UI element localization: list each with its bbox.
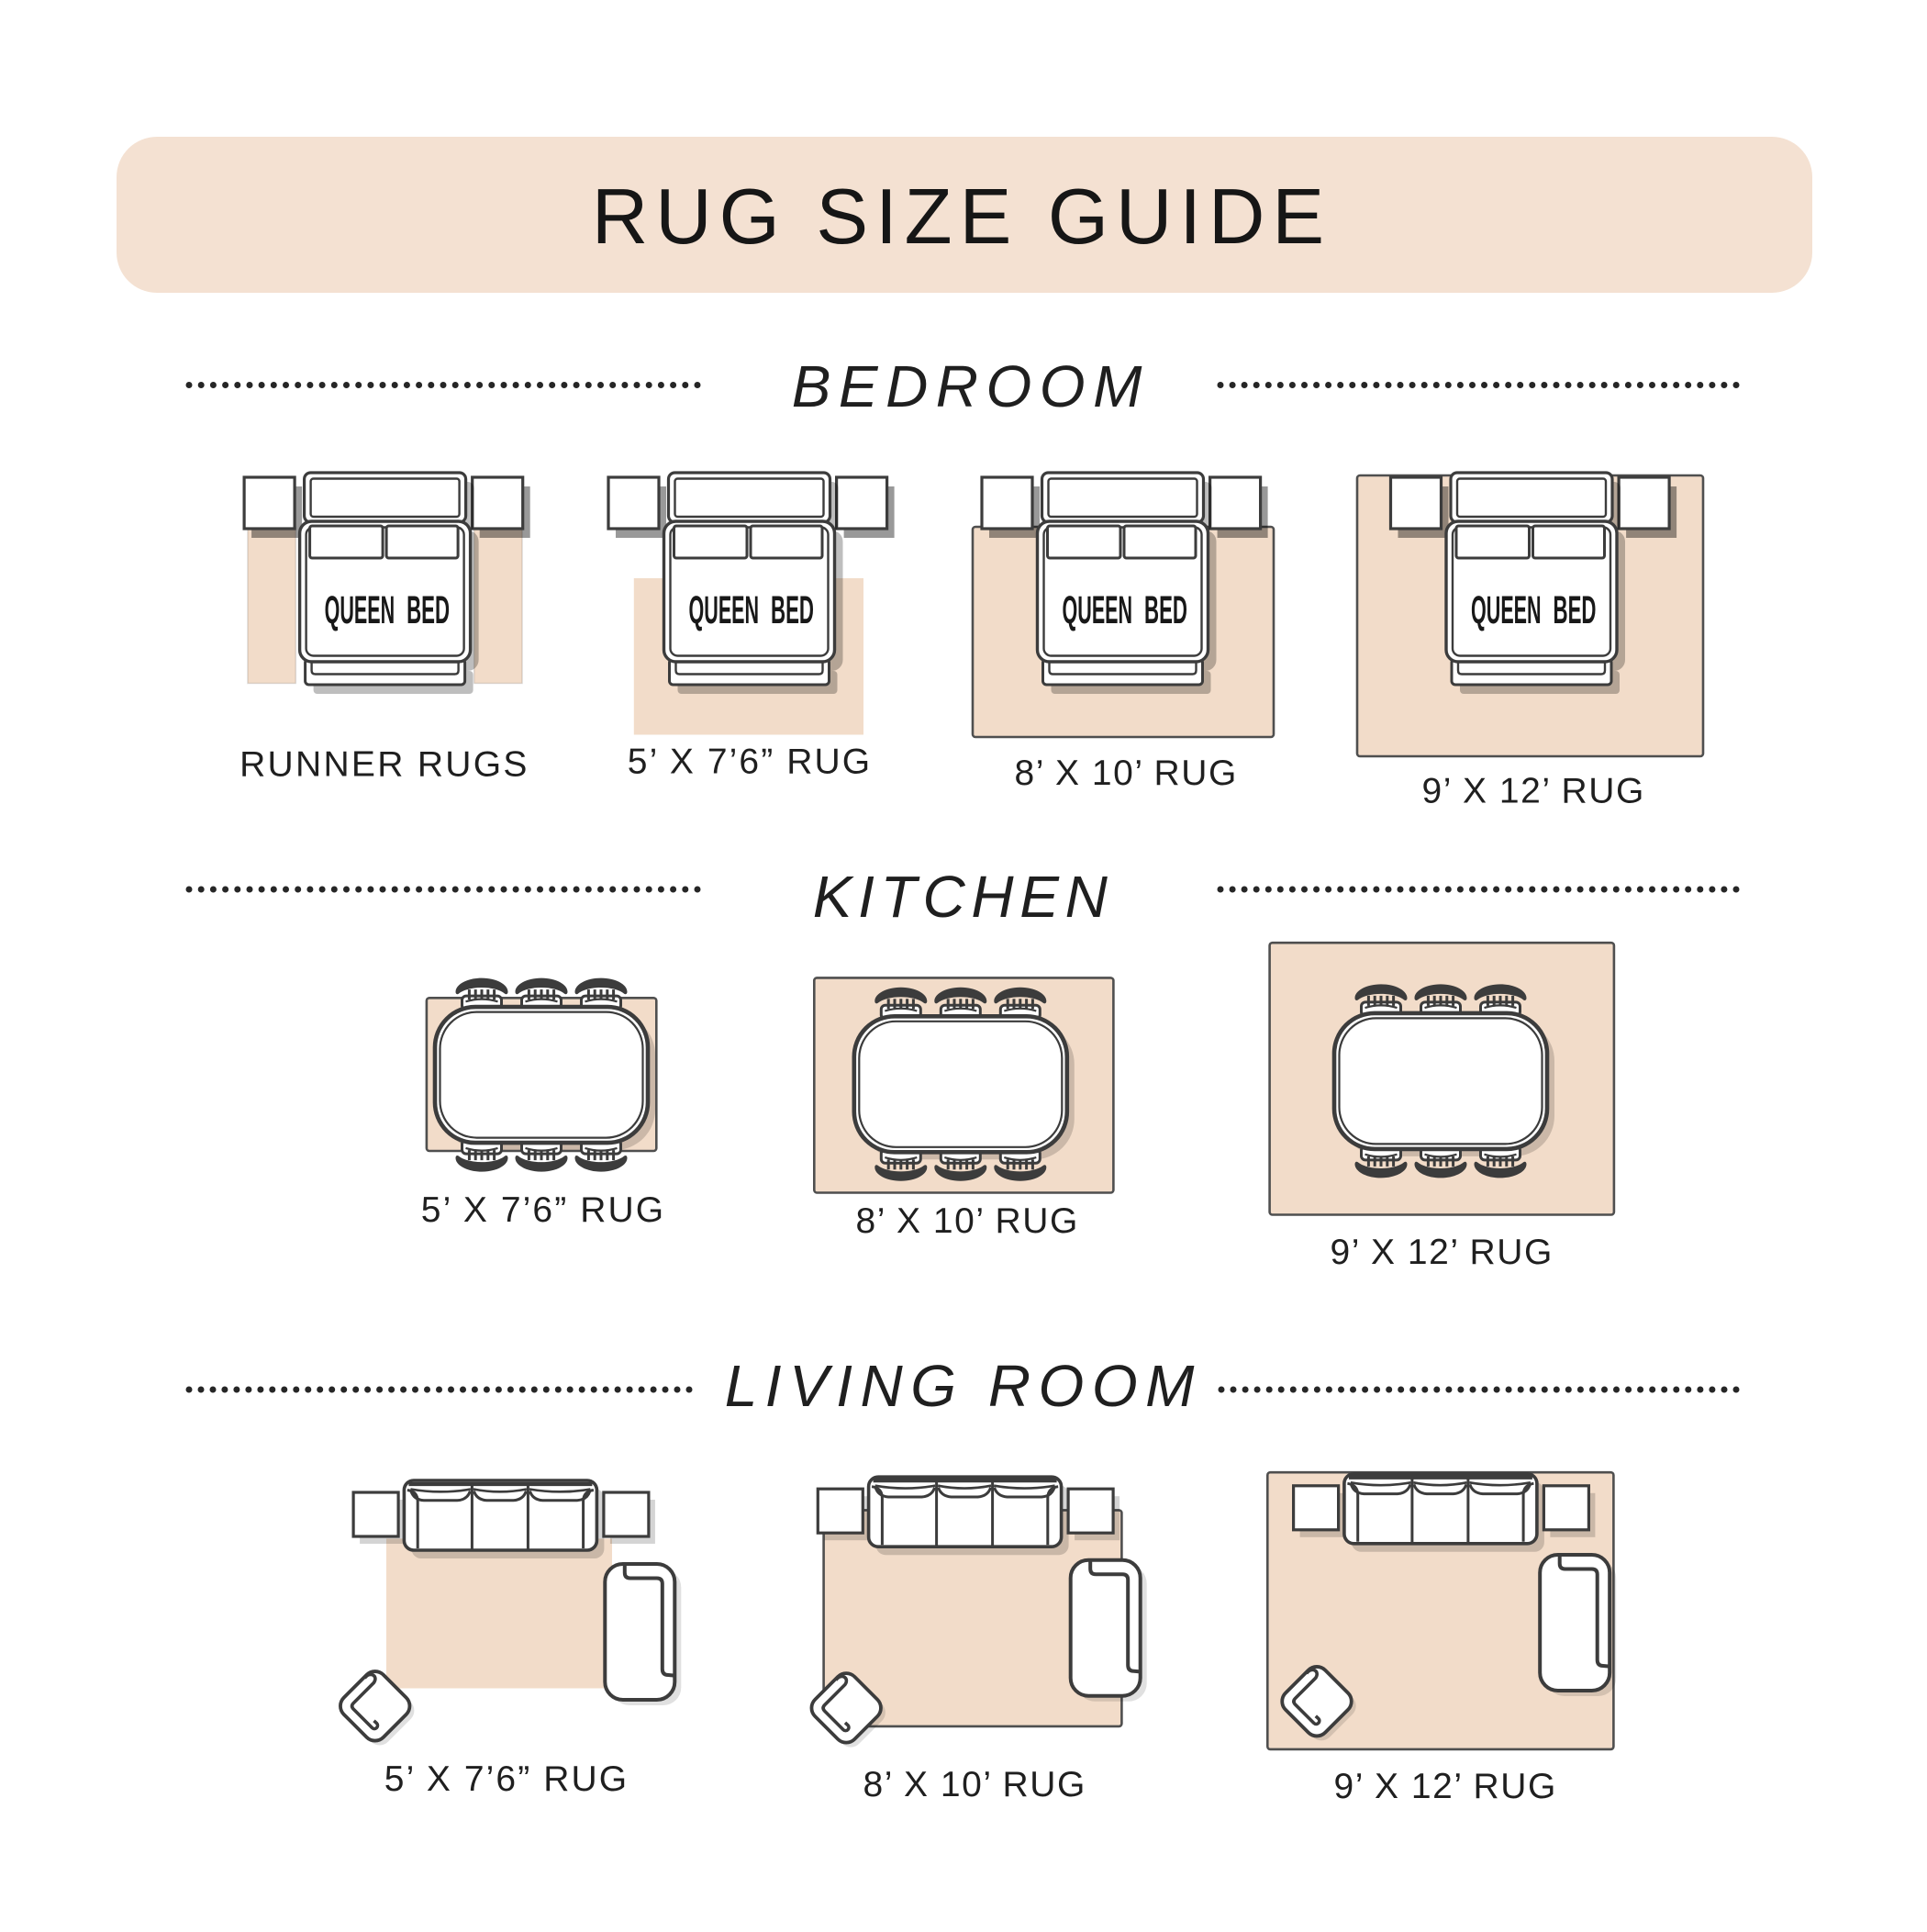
svg-text:QUEEN: QUEEN: [325, 588, 395, 632]
svg-text:BED: BED: [771, 588, 814, 632]
svg-text:QUEEN: QUEEN: [689, 588, 760, 632]
svg-text:KITCHEN: KITCHEN: [813, 864, 1114, 930]
svg-text:9’ X 12’ RUG: 9’ X 12’ RUG: [1422, 771, 1645, 810]
svg-text:RUG SIZE GUIDE: RUG SIZE GUIDE: [592, 173, 1331, 261]
svg-text:5’ X 7’6” RUG: 5’ X 7’6” RUG: [421, 1190, 665, 1230]
svg-text:BED: BED: [1554, 588, 1597, 632]
svg-text:9’ X 12’ RUG: 9’ X 12’ RUG: [1334, 1767, 1557, 1806]
svg-text:QUEEN: QUEEN: [1063, 588, 1133, 632]
svg-text:9’ X 12’ RUG: 9’ X 12’ RUG: [1331, 1233, 1554, 1272]
svg-text:8’ X 10’ RUG: 8’ X 10’ RUG: [856, 1201, 1079, 1241]
svg-text:5’ X 7’6” RUG: 5’ X 7’6” RUG: [628, 743, 872, 782]
svg-text:BEDROOM: BEDROOM: [792, 353, 1150, 419]
svg-text:LIVING ROOM: LIVING ROOM: [725, 1353, 1202, 1419]
svg-text:5’ X 7’6” RUG: 5’ X 7’6” RUG: [384, 1759, 629, 1799]
svg-text:BED: BED: [1144, 588, 1187, 632]
svg-text:8’ X 10’ RUG: 8’ X 10’ RUG: [863, 1765, 1086, 1804]
svg-text:BED: BED: [407, 588, 450, 632]
svg-text:RUNNER RUGS: RUNNER RUGS: [239, 745, 529, 785]
svg-text:8’ X 10’ RUG: 8’ X 10’ RUG: [1015, 754, 1238, 793]
svg-text:QUEEN: QUEEN: [1471, 588, 1542, 632]
